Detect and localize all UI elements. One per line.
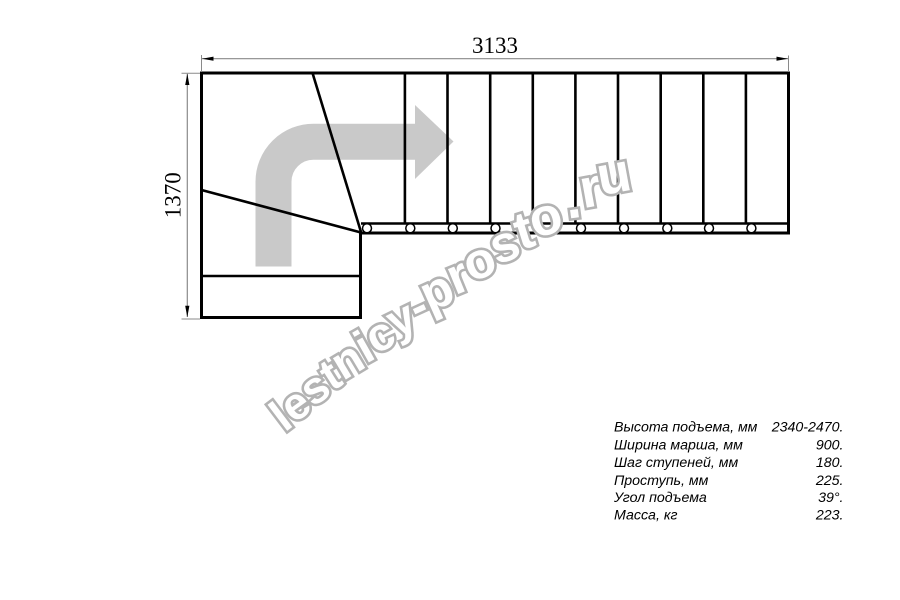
svg-text:Высота подъема, мм: Высота подъема, мм [614,420,758,436]
svg-text:180.: 180. [816,455,844,471]
svg-text:39°.: 39°. [818,490,843,506]
svg-text:900.: 900. [816,437,844,453]
svg-text:225.: 225. [815,473,844,489]
svg-text:Проступь, мм: Проступь, мм [614,473,709,489]
svg-text:223.: 223. [815,508,844,524]
svg-text:2340-2470.: 2340-2470. [771,420,844,436]
svg-text:3133: 3133 [472,33,518,58]
svg-text:Ширина марша, мм: Ширина марша, мм [614,437,743,453]
svg-text:Угол подъема: Угол подъема [613,490,707,506]
svg-text:Шаг ступеней, мм: Шаг ступеней, мм [614,455,738,471]
svg-text:Масса, кг: Масса, кг [614,508,678,524]
svg-text:1370: 1370 [161,172,186,218]
